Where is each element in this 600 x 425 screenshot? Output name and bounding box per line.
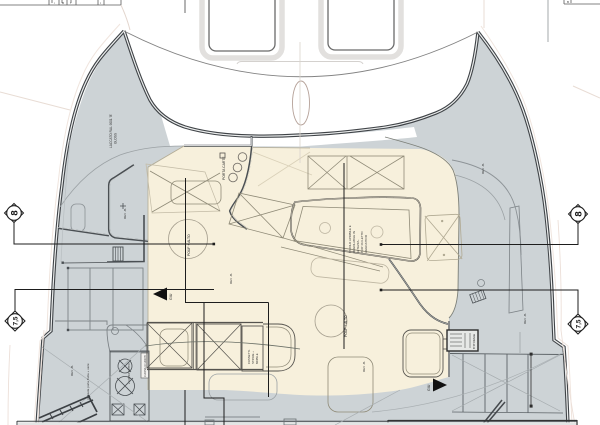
- svg-text:MOBILE: MOBILE: [255, 353, 259, 364]
- svg-text:GIU: GIU: [427, 384, 431, 391]
- svg-text:REV -B-: REV -B-: [229, 273, 233, 284]
- svg-text:8: 8: [573, 211, 584, 216]
- svg-text:B: B: [62, 1, 64, 5]
- svg-text:LACCATO RAL 9001 'B': LACCATO RAL 9001 'B': [109, 114, 113, 148]
- svg-text:GIU: GIU: [169, 293, 173, 300]
- svg-text:+ FORNO SOTTO: + FORNO SOTTO: [128, 364, 131, 384]
- svg-text:REV -B-: REV -B-: [70, 365, 74, 376]
- svg-text:REV -B-: REV -B-: [523, 313, 527, 324]
- svg-text:7,5: 7,5: [575, 319, 582, 328]
- svg-text:7,5: 7,5: [12, 316, 19, 325]
- svg-text:POUF + ALTO: POUF + ALTO: [187, 234, 191, 256]
- svg-text:B STORAGE: B STORAGE: [472, 334, 476, 349]
- svg-text:B: B: [567, 0, 569, 4]
- svg-text:mensola porta frutta + varie: mensola porta frutta + varie: [86, 363, 90, 400]
- svg-text:GLOSS: GLOSS: [114, 133, 118, 144]
- svg-text:REV -B-: REV -B-: [123, 208, 127, 219]
- svg-text:REV -B-: REV -B-: [362, 361, 366, 372]
- svg-text:AGGIUNTIVO: AGGIUNTIVO: [364, 234, 368, 253]
- svg-text:PORTA CARTE: PORTA CARTE: [222, 156, 226, 180]
- svg-text:REV -B-: REV -B-: [481, 163, 485, 174]
- svg-text:8: 8: [9, 210, 20, 215]
- svg-text:POUF + ALTO: POUF + ALTO: [344, 315, 348, 337]
